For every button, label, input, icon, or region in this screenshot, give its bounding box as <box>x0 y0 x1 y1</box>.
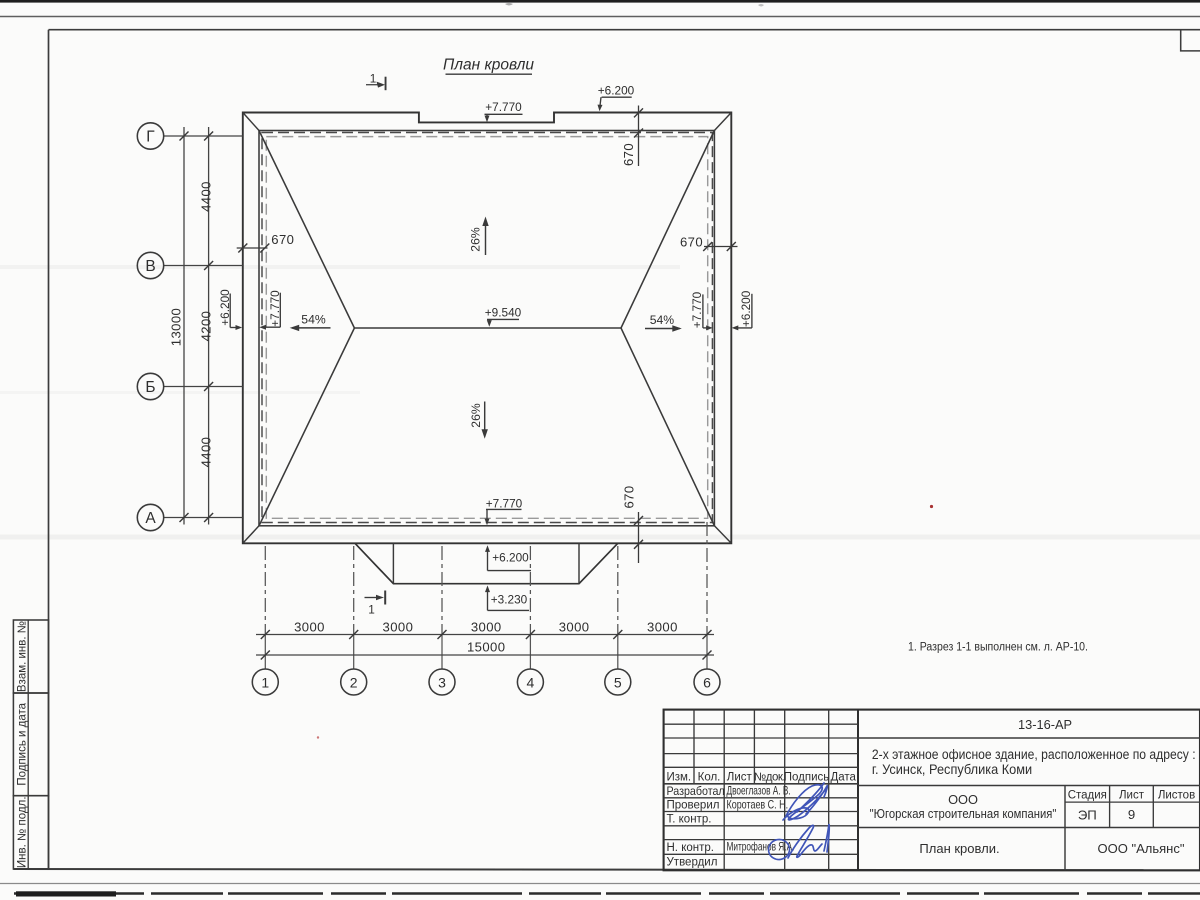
svg-text:Проверил: Проверил <box>667 800 720 812</box>
svg-text:26%: 26% <box>468 227 482 252</box>
svg-text:Инв. № подл.: Инв. № подл. <box>17 796 29 868</box>
svg-text:Коротаев С. Н.: Коротаев С. Н. <box>727 799 789 811</box>
svg-text:4400: 4400 <box>199 437 214 468</box>
svg-text:1: 1 <box>370 72 377 86</box>
svg-text:+6.200: +6.200 <box>492 551 529 565</box>
svg-text:54%: 54% <box>650 313 675 327</box>
svg-text:3000: 3000 <box>383 620 414 635</box>
svg-text:Б: Б <box>145 379 155 396</box>
svg-text:+6.200: +6.200 <box>739 290 753 327</box>
svg-text:670: 670 <box>621 143 636 166</box>
svg-text:"Югорская строительная компани: "Югорская строительная компания" <box>870 806 1057 821</box>
svg-text:А: А <box>145 510 156 527</box>
svg-text:Лист: Лист <box>727 771 753 783</box>
svg-text:ООО: ООО <box>948 792 978 807</box>
svg-text:1: 1 <box>368 603 375 617</box>
svg-text:ООО "Альянс": ООО "Альянс" <box>1098 841 1185 856</box>
svg-text:Н. контр.: Н. контр. <box>667 842 714 854</box>
svg-text:26%: 26% <box>469 403 483 428</box>
svg-text:+6.200: +6.200 <box>598 84 635 98</box>
svg-text:ЭП: ЭП <box>1078 807 1097 822</box>
svg-text:3: 3 <box>438 674 446 690</box>
svg-text:План кровли.: План кровли. <box>919 841 999 856</box>
svg-text:Изм.: Изм. <box>666 771 691 783</box>
svg-text:13000: 13000 <box>169 308 184 346</box>
svg-text:Двоеглазов А. В.: Двоеглазов А. В. <box>727 785 791 798</box>
svg-text:6: 6 <box>703 674 711 690</box>
svg-text:4400: 4400 <box>199 181 214 212</box>
svg-text:Кол.: Кол. <box>698 771 721 783</box>
svg-text:9: 9 <box>1128 807 1135 822</box>
svg-text:Взам. инв. №: Взам. инв. № <box>17 621 29 692</box>
svg-text:13-16-АР: 13-16-АР <box>1018 717 1072 732</box>
svg-text:2-х этажное офисное здание, ра: 2-х этажное офисное здание, расположенно… <box>872 746 1196 762</box>
svg-text:4200: 4200 <box>199 311 214 342</box>
svg-text:+3.230: +3.230 <box>491 593 528 607</box>
svg-text:3000: 3000 <box>559 620 590 635</box>
svg-text:670: 670 <box>622 485 637 508</box>
svg-text:+7.770: +7.770 <box>690 291 704 328</box>
svg-text:2: 2 <box>350 674 358 690</box>
svg-text:3000: 3000 <box>471 620 502 635</box>
svg-text:Подпись и дата: Подпись и дата <box>17 702 29 785</box>
svg-text:670: 670 <box>271 232 294 247</box>
svg-text:3000: 3000 <box>294 620 325 635</box>
svg-text:Подпись: Подпись <box>784 771 830 783</box>
svg-text:Листов: Листов <box>1158 789 1195 801</box>
svg-text:54%: 54% <box>301 313 326 327</box>
svg-text:№док.: №док. <box>754 771 785 783</box>
svg-text:4: 4 <box>527 674 535 690</box>
svg-text:670: 670 <box>680 235 703 250</box>
svg-text:План кровли: План кровли <box>443 56 534 73</box>
svg-text:+9.540: +9.540 <box>485 305 522 319</box>
svg-text:Лист: Лист <box>1119 789 1145 801</box>
svg-text:Дата: Дата <box>830 771 856 783</box>
svg-text:5: 5 <box>614 674 622 690</box>
svg-text:3000: 3000 <box>647 620 678 635</box>
svg-text:В: В <box>145 258 155 275</box>
svg-text:Утвердил: Утвердил <box>667 857 718 869</box>
svg-text:Г: Г <box>146 129 155 146</box>
svg-text:Стадия: Стадия <box>1068 789 1107 801</box>
svg-text:+7.770: +7.770 <box>485 100 522 114</box>
svg-text:1. Разрез 1-1 выполнен см. л.: 1. Разрез 1-1 выполнен см. л. АР-10. <box>908 641 1088 654</box>
svg-text:Т. контр.: Т. контр. <box>667 813 712 825</box>
svg-text:Митрофанов Я.А.: Митрофанов Я.А. <box>727 840 795 854</box>
svg-text:г. Усинск, Республика Коми: г. Усинск, Республика Коми <box>872 761 1032 777</box>
svg-text:15000: 15000 <box>467 640 505 655</box>
svg-text:1: 1 <box>261 674 269 690</box>
svg-text:+7.770: +7.770 <box>486 496 523 510</box>
svg-text:Разработал: Разработал <box>667 785 725 797</box>
